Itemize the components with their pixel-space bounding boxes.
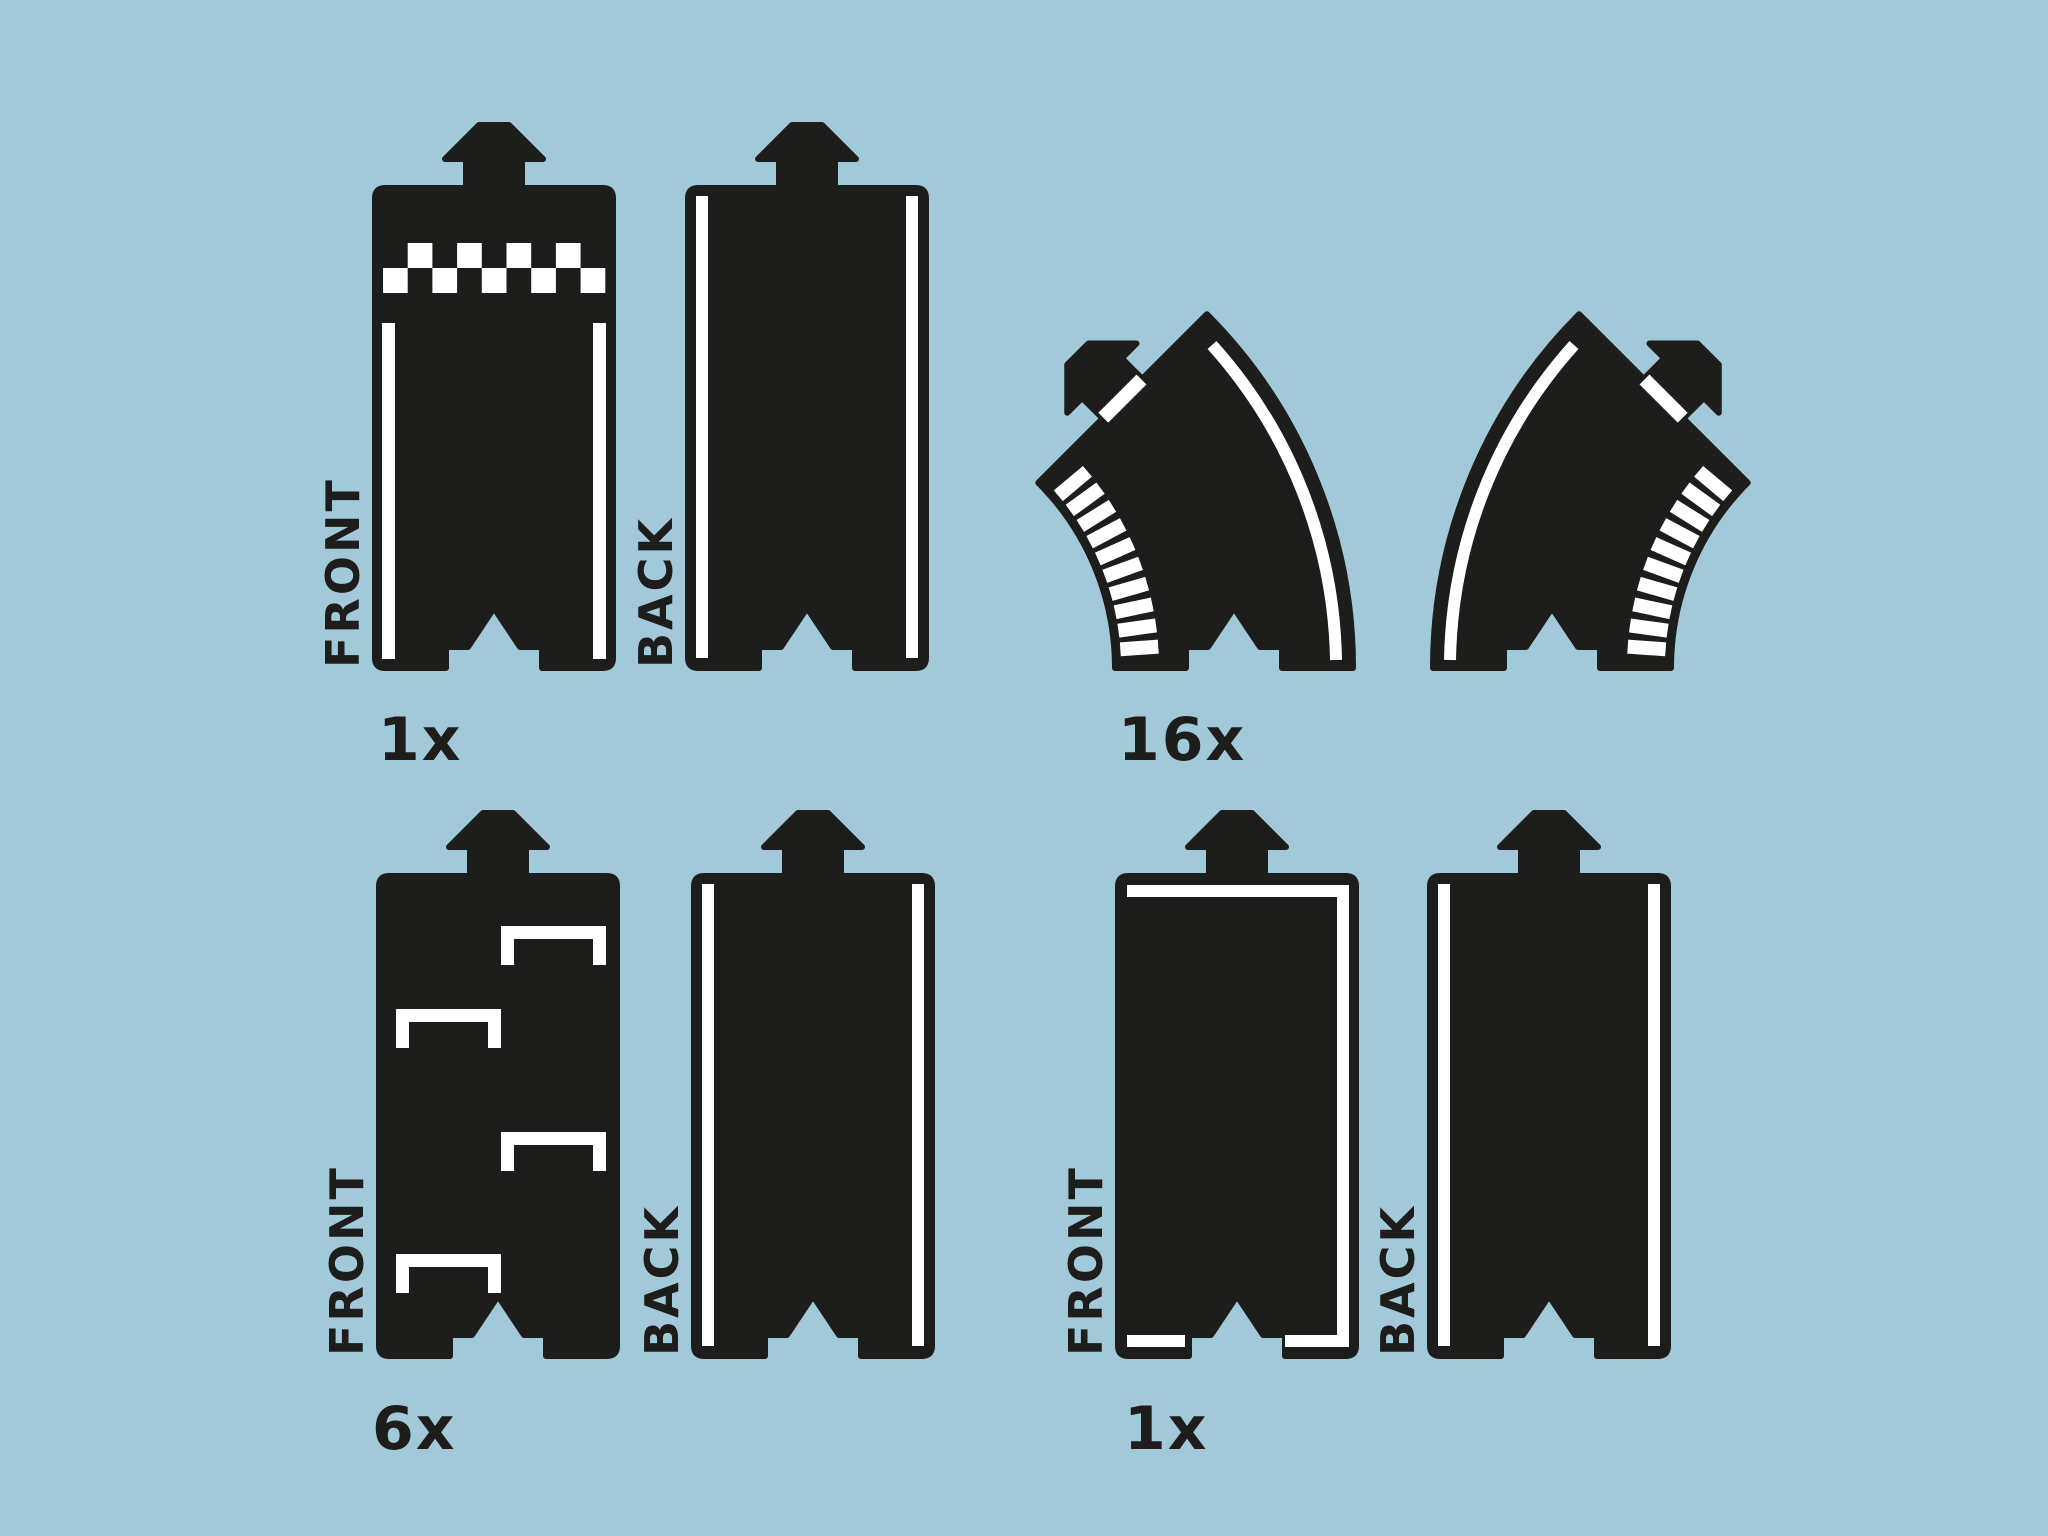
back-label-bordered: BACK <box>1376 1204 1420 1356</box>
front-label-bordered: FRONT <box>1064 1165 1108 1356</box>
curve-piece-left <box>1038 314 1353 668</box>
start-finish-back-piece <box>688 125 926 668</box>
start-finish-front-piece <box>375 125 613 668</box>
pieces-graphic <box>0 0 2048 1536</box>
count-curves: 16x <box>1118 710 1246 770</box>
road-track-pieces-diagram: FRONT BACK FRONT BACK FRONT BACK 1x 16x … <box>0 0 2048 1536</box>
back-label-start-finish: BACK <box>634 516 678 668</box>
count-start-finish: 1x <box>378 710 462 770</box>
front-label-marked: FRONT <box>325 1165 369 1356</box>
count-bordered: 1x <box>1124 1399 1208 1459</box>
back-label-marked: BACK <box>640 1204 684 1356</box>
bordered-straight-back-piece <box>1430 813 1668 1356</box>
front-label-start-finish: FRONT <box>321 477 365 668</box>
curve-piece-right <box>1433 314 1748 668</box>
marked-straight-back-piece <box>694 813 932 1356</box>
bordered-straight-front-piece <box>1118 813 1356 1356</box>
marked-straight-front-piece <box>379 813 617 1356</box>
count-marked: 6x <box>372 1399 456 1459</box>
